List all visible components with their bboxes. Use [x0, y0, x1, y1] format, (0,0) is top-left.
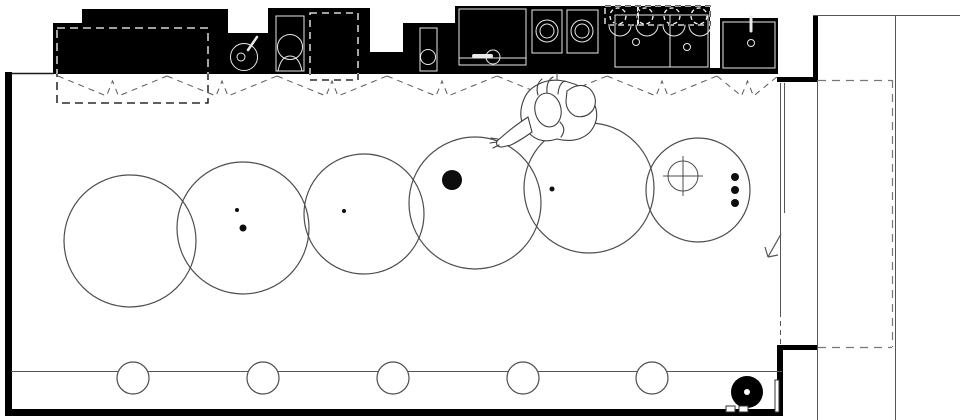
corridor	[813, 15, 960, 420]
person-figure	[490, 77, 597, 148]
stool-1	[117, 362, 149, 394]
left-wall	[5, 72, 12, 415]
wall-step-top	[777, 77, 817, 82]
door-leaf	[775, 380, 779, 412]
large-dot	[442, 170, 462, 190]
mixer-hub	[744, 389, 750, 395]
work-circle-1	[64, 175, 196, 307]
floor-plan	[0, 0, 960, 420]
counter-block-5	[370, 52, 403, 74]
point-dot	[235, 208, 239, 212]
point-dot	[240, 225, 247, 232]
wall-step-bottom	[777, 345, 817, 350]
triple-dot-1	[731, 173, 739, 181]
entry-arrow	[765, 234, 781, 257]
seating	[11, 362, 782, 394]
person-right-arm	[566, 85, 595, 116]
work-circles	[64, 123, 750, 307]
work-circle-3	[304, 154, 424, 274]
walls	[5, 15, 818, 416]
triple-dot-3	[731, 199, 739, 207]
counter-block-2	[82, 9, 228, 74]
counter-block-6	[403, 23, 455, 74]
work-circle-5	[524, 123, 654, 253]
triple-dot-2	[731, 186, 739, 194]
bottom-wall	[5, 409, 783, 416]
counter-run	[53, 6, 778, 74]
work-circle-4	[409, 137, 541, 269]
mixer-foot-1	[726, 406, 735, 412]
point-dot	[550, 187, 555, 192]
cabinet-door-zigzag	[58, 76, 778, 96]
counter-strip	[710, 68, 720, 74]
counter-block-3	[228, 33, 268, 74]
counter-block-4	[268, 8, 370, 74]
stool-5	[636, 362, 668, 394]
mixer-foot-2	[739, 406, 748, 412]
stool-2	[247, 362, 279, 394]
cabinet-zigzag	[58, 76, 778, 96]
person-left-arm	[497, 117, 532, 147]
corridor-wall-top	[813, 15, 818, 80]
floor-mixer	[726, 376, 763, 412]
floor-plan-svg	[0, 0, 960, 420]
point-dot	[342, 209, 346, 213]
stool-4	[507, 362, 539, 394]
stool-3	[377, 362, 409, 394]
